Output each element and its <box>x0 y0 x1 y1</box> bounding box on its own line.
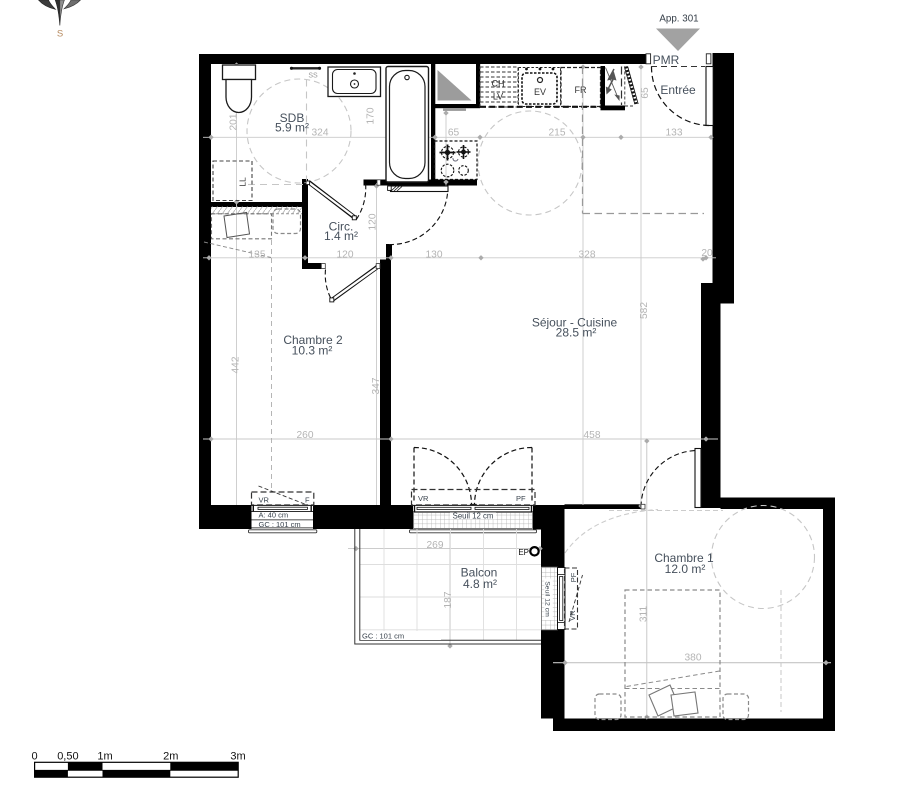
svg-text:1.4 m²: 1.4 m² <box>324 229 358 243</box>
svg-text:S: S <box>57 29 63 40</box>
svg-text:VR: VR <box>418 494 429 503</box>
svg-text:135: 135 <box>249 249 266 260</box>
svg-text:380: 380 <box>685 653 702 664</box>
svg-text:582: 582 <box>639 302 650 319</box>
svg-text:3m: 3m <box>230 751 245 763</box>
svg-text:311: 311 <box>639 606 650 623</box>
svg-text:SS: SS <box>308 73 318 80</box>
svg-text:EV: EV <box>534 87 546 97</box>
svg-text:CH: CH <box>492 79 505 89</box>
svg-text:260: 260 <box>297 430 314 441</box>
svg-text:PF: PF <box>516 494 526 503</box>
svg-text:347: 347 <box>371 377 382 394</box>
svg-text:328: 328 <box>579 249 596 260</box>
svg-text:201: 201 <box>229 113 240 130</box>
svg-text:133: 133 <box>666 127 683 138</box>
svg-text:LL: LL <box>238 177 248 187</box>
svg-text:Seuil 12 cm: Seuil 12 cm <box>453 512 494 521</box>
svg-text:10.3 m²: 10.3 m² <box>292 344 333 358</box>
svg-text:0: 0 <box>32 751 38 763</box>
svg-text:PMR: PMR <box>653 53 680 67</box>
svg-text:170: 170 <box>366 107 377 124</box>
svg-text:120: 120 <box>337 249 354 260</box>
svg-text:215: 215 <box>549 127 566 138</box>
svg-text:PF: PF <box>569 572 578 582</box>
svg-text:324: 324 <box>312 127 329 138</box>
svg-text:120: 120 <box>368 213 379 230</box>
svg-text:442: 442 <box>231 356 242 373</box>
svg-text:VR: VR <box>568 610 577 621</box>
svg-text:Entrée: Entrée <box>660 83 696 97</box>
svg-text:Seuil 12 cm: Seuil 12 cm <box>543 581 550 617</box>
svg-text:187: 187 <box>443 591 454 608</box>
svg-text:VR: VR <box>259 495 270 504</box>
svg-text:EP: EP <box>518 548 529 557</box>
svg-text:LV: LV <box>493 92 503 102</box>
svg-text:App. 301: App. 301 <box>659 14 698 25</box>
svg-text:65: 65 <box>448 127 460 138</box>
svg-text:2m: 2m <box>163 751 178 763</box>
svg-text:0,50: 0,50 <box>57 751 78 763</box>
svg-text:269: 269 <box>427 540 444 551</box>
svg-text:28.5 m²: 28.5 m² <box>556 326 597 340</box>
svg-text:65: 65 <box>640 87 651 99</box>
svg-text:5.9 m²: 5.9 m² <box>275 120 309 134</box>
svg-text:458: 458 <box>584 430 601 441</box>
svg-text:12.0 m²: 12.0 m² <box>665 562 706 576</box>
svg-text:20: 20 <box>701 248 713 259</box>
svg-text:GC : 101 cm: GC : 101 cm <box>362 632 404 641</box>
svg-text:130: 130 <box>426 249 443 260</box>
svg-text:1m: 1m <box>97 751 112 763</box>
svg-text:F: F <box>305 495 310 504</box>
svg-text:FR: FR <box>575 85 587 95</box>
svg-text:4.8 m²: 4.8 m² <box>463 577 497 591</box>
svg-text:A: 40 cm: A: 40 cm <box>259 510 289 519</box>
